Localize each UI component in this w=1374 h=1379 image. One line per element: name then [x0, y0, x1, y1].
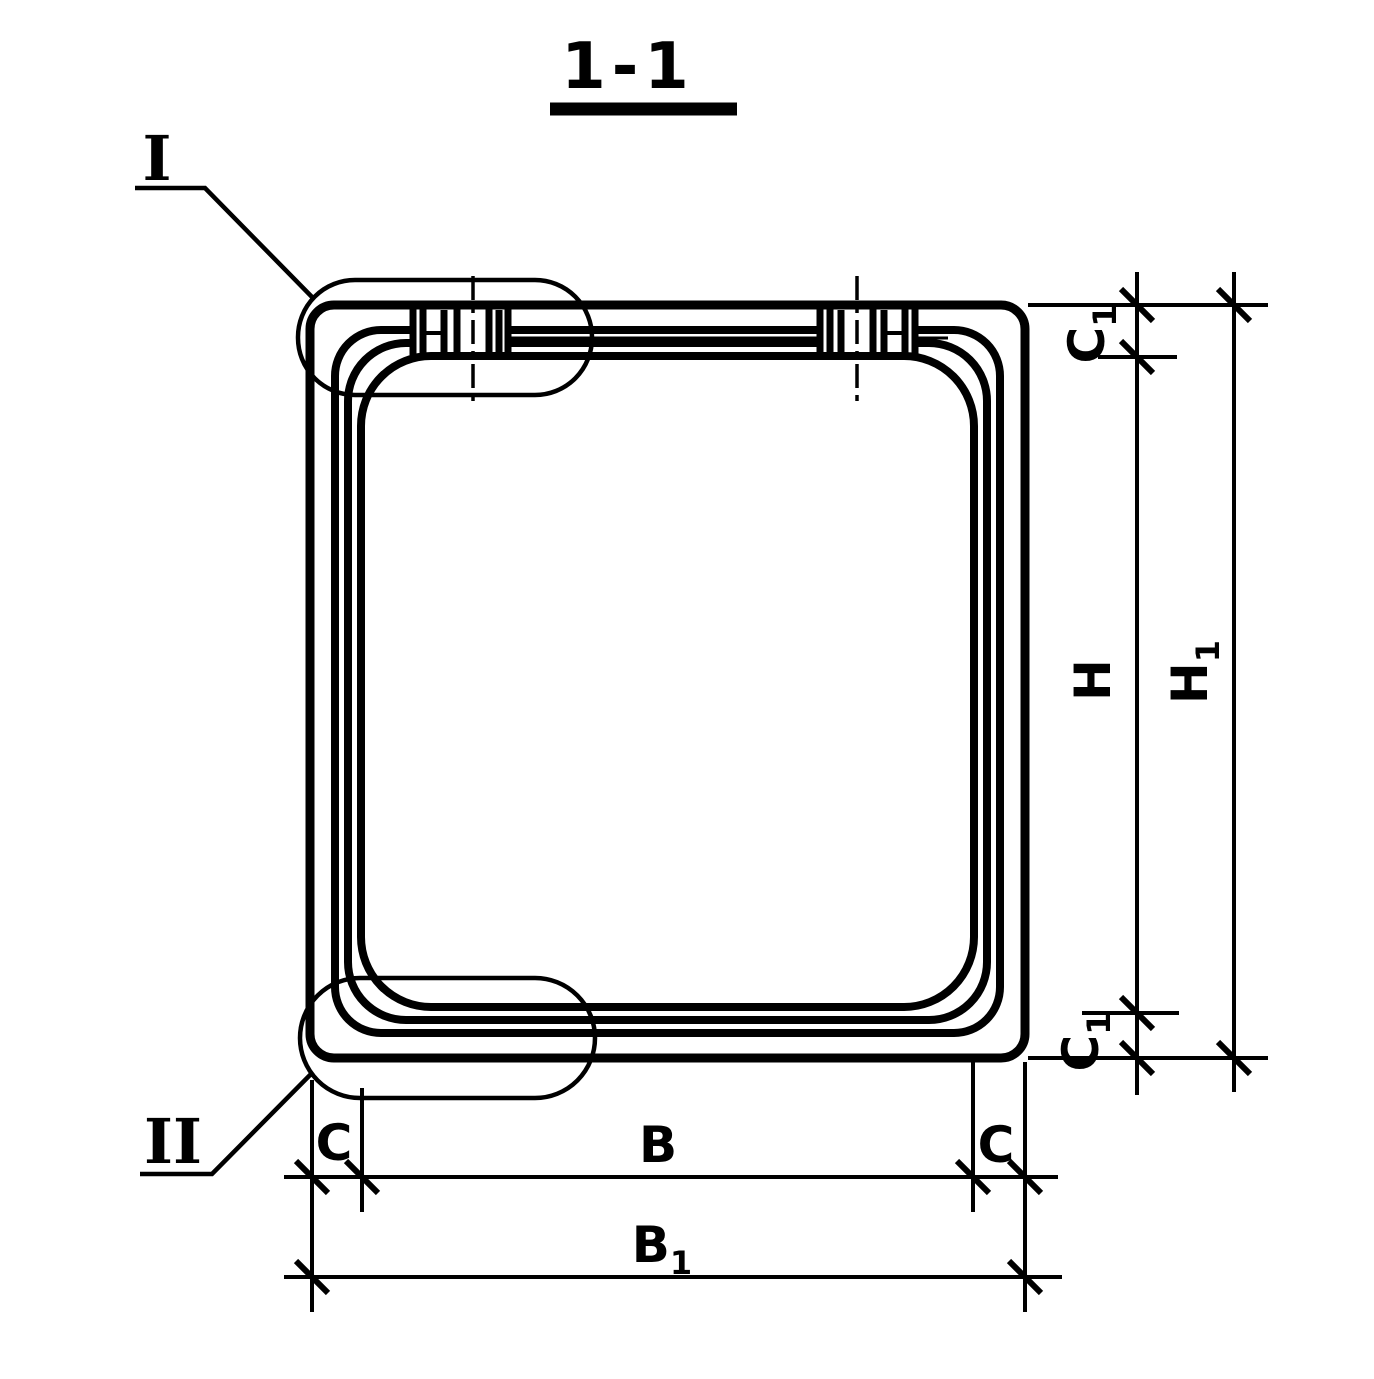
- leader-line-I: [135, 188, 313, 298]
- top-joint-left: [413, 276, 508, 402]
- detail-label-II: II: [144, 1105, 202, 1178]
- section-1-1-drawing: 1-1 I II C1 H H1 C1: [0, 0, 1374, 1379]
- section-title: 1-1: [561, 30, 695, 104]
- top-joint-right: [820, 276, 915, 402]
- frame-outline: [310, 305, 1025, 1058]
- section-title-group: 1-1: [550, 30, 737, 109]
- dim-label-c1-bottom: C1: [1052, 1013, 1118, 1072]
- detail-label-I: I: [142, 122, 171, 195]
- dim-label-h: H: [1064, 659, 1122, 701]
- detail-oval-II: [300, 978, 595, 1098]
- frame-inner-line-3: [361, 356, 974, 1007]
- dim-label-c1-top: C1: [1058, 305, 1124, 364]
- dim-label-b1: B1: [632, 1216, 692, 1282]
- dim-label-c-right: C: [978, 1116, 1015, 1174]
- dim-label-c-left: C: [316, 1114, 353, 1172]
- frame-inner-line-2: [348, 343, 987, 1020]
- frame-outer-contour: [310, 305, 1025, 1058]
- dim-label-h1: H1: [1161, 640, 1227, 704]
- technical-drawing-sheet: 1-1 I II C1 H H1 C1: [0, 0, 1374, 1379]
- dim-label-b: B: [639, 1116, 677, 1174]
- frame-inner-line-1: [335, 330, 1000, 1033]
